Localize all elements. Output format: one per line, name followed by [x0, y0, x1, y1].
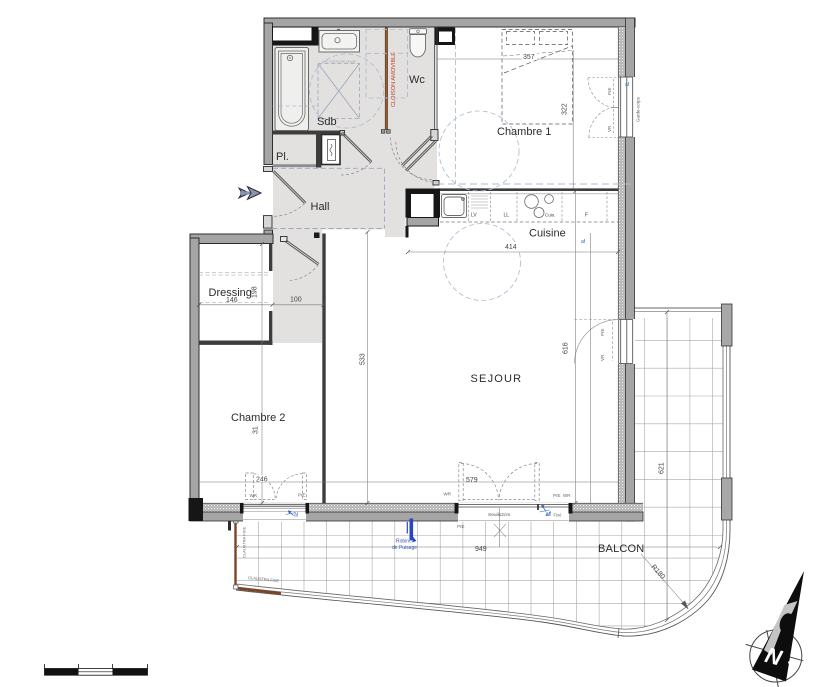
svg-text:F: F [585, 213, 588, 219]
svg-text:VR: VR [600, 354, 605, 361]
svg-text:PrE: PrE [298, 493, 306, 498]
svg-text:Pl.: Pl. [276, 151, 289, 163]
svg-text:Hall: Hall [311, 201, 330, 213]
svg-text:100: 100 [290, 297, 302, 304]
svg-text:949: 949 [475, 546, 487, 553]
svg-text:Sdb: Sdb [317, 116, 337, 128]
svg-text:Fixé: Fixé [554, 513, 563, 518]
svg-text:246: 246 [256, 477, 268, 484]
svg-text:PrE: PrE [553, 493, 561, 498]
svg-text:616: 616 [563, 342, 570, 354]
svg-text:Cuis.: Cuis. [545, 213, 555, 218]
svg-text:533: 533 [360, 353, 367, 365]
svg-text:31: 31 [253, 426, 260, 434]
svg-text:CLOISON AMOVIBLE: CLOISON AMOVIBLE [391, 52, 397, 107]
svg-text:BAC A DOUCHE 120x80: BAC A DOUCHE 120x80 [323, 60, 357, 64]
svg-text:af: af [625, 82, 630, 88]
svg-text:Dressing: Dressing [209, 287, 252, 299]
svg-text:579: 579 [466, 477, 478, 484]
svg-text:af: af [581, 239, 586, 245]
svg-text:de Puisage: de Puisage [392, 545, 417, 551]
svg-text:PrE: PrE [607, 87, 612, 95]
svg-text:BALCON: BALCON [598, 543, 644, 555]
svg-text:PrE: PrE [457, 524, 465, 529]
svg-text:Seuil≤2cm: Seuil≤2cm [488, 512, 510, 518]
svg-text:198: 198 [252, 286, 259, 298]
svg-text:CLAUSTRA FIXE: CLAUSTRA FIXE [242, 527, 247, 558]
svg-text:VR: VR [607, 125, 612, 132]
svg-text:621: 621 [659, 462, 666, 474]
svg-text:WR: WR [563, 493, 571, 498]
svg-text:PrE: PrE [600, 328, 605, 336]
svg-text:Garde-corps: Garde-corps [636, 96, 641, 122]
svg-text:414: 414 [505, 244, 517, 251]
svg-text:WR: WR [444, 492, 452, 497]
svg-text:Wc: Wc [409, 74, 425, 86]
svg-text:af: af [294, 513, 299, 519]
svg-text:Cuisine: Cuisine [529, 228, 566, 240]
svg-text:LL: LL [504, 213, 510, 219]
svg-text:322: 322 [562, 103, 569, 115]
svg-text:WR: WR [250, 493, 258, 498]
svg-text:Robinet: Robinet [396, 539, 414, 545]
svg-text:LV: LV [471, 213, 477, 219]
svg-text:SEJOUR: SEJOUR [471, 373, 523, 385]
svg-text:Chambre 1: Chambre 1 [497, 126, 551, 138]
svg-text:357: 357 [523, 54, 535, 61]
svg-text:Chambre 2: Chambre 2 [231, 412, 285, 424]
